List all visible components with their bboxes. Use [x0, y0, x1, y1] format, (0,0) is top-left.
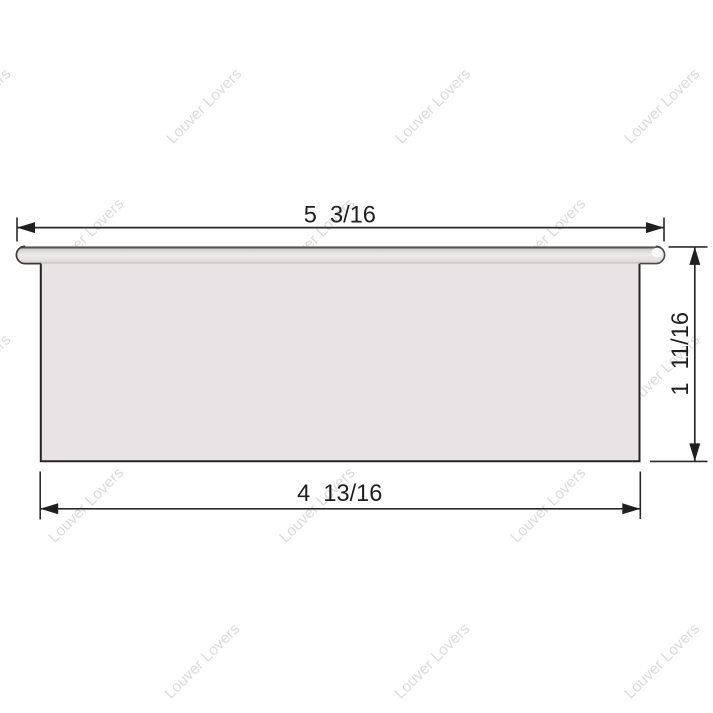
- svg-text:Louver Lovers: Louver Lovers: [391, 620, 473, 702]
- svg-text:Louver Lovers: Louver Lovers: [163, 65, 245, 147]
- svg-text:Louver Lovers: Louver Lovers: [621, 620, 703, 702]
- svg-text:4 13/16: 4 13/16: [297, 481, 382, 507]
- svg-text:Louver Lovers: Louver Lovers: [621, 65, 703, 147]
- svg-text:Louver Lovers: Louver Lovers: [161, 620, 243, 702]
- svg-text:1 11/16: 1 11/16: [668, 312, 694, 396]
- svg-text:Louver Lovers: Louver Lovers: [0, 65, 14, 147]
- svg-text:5 3/16: 5 3/16: [304, 202, 376, 228]
- svg-text:Louver Lovers: Louver Lovers: [392, 65, 474, 147]
- svg-text:Louver Lovers: Louver Lovers: [507, 464, 589, 546]
- svg-text:Louver Lovers: Louver Lovers: [0, 331, 14, 413]
